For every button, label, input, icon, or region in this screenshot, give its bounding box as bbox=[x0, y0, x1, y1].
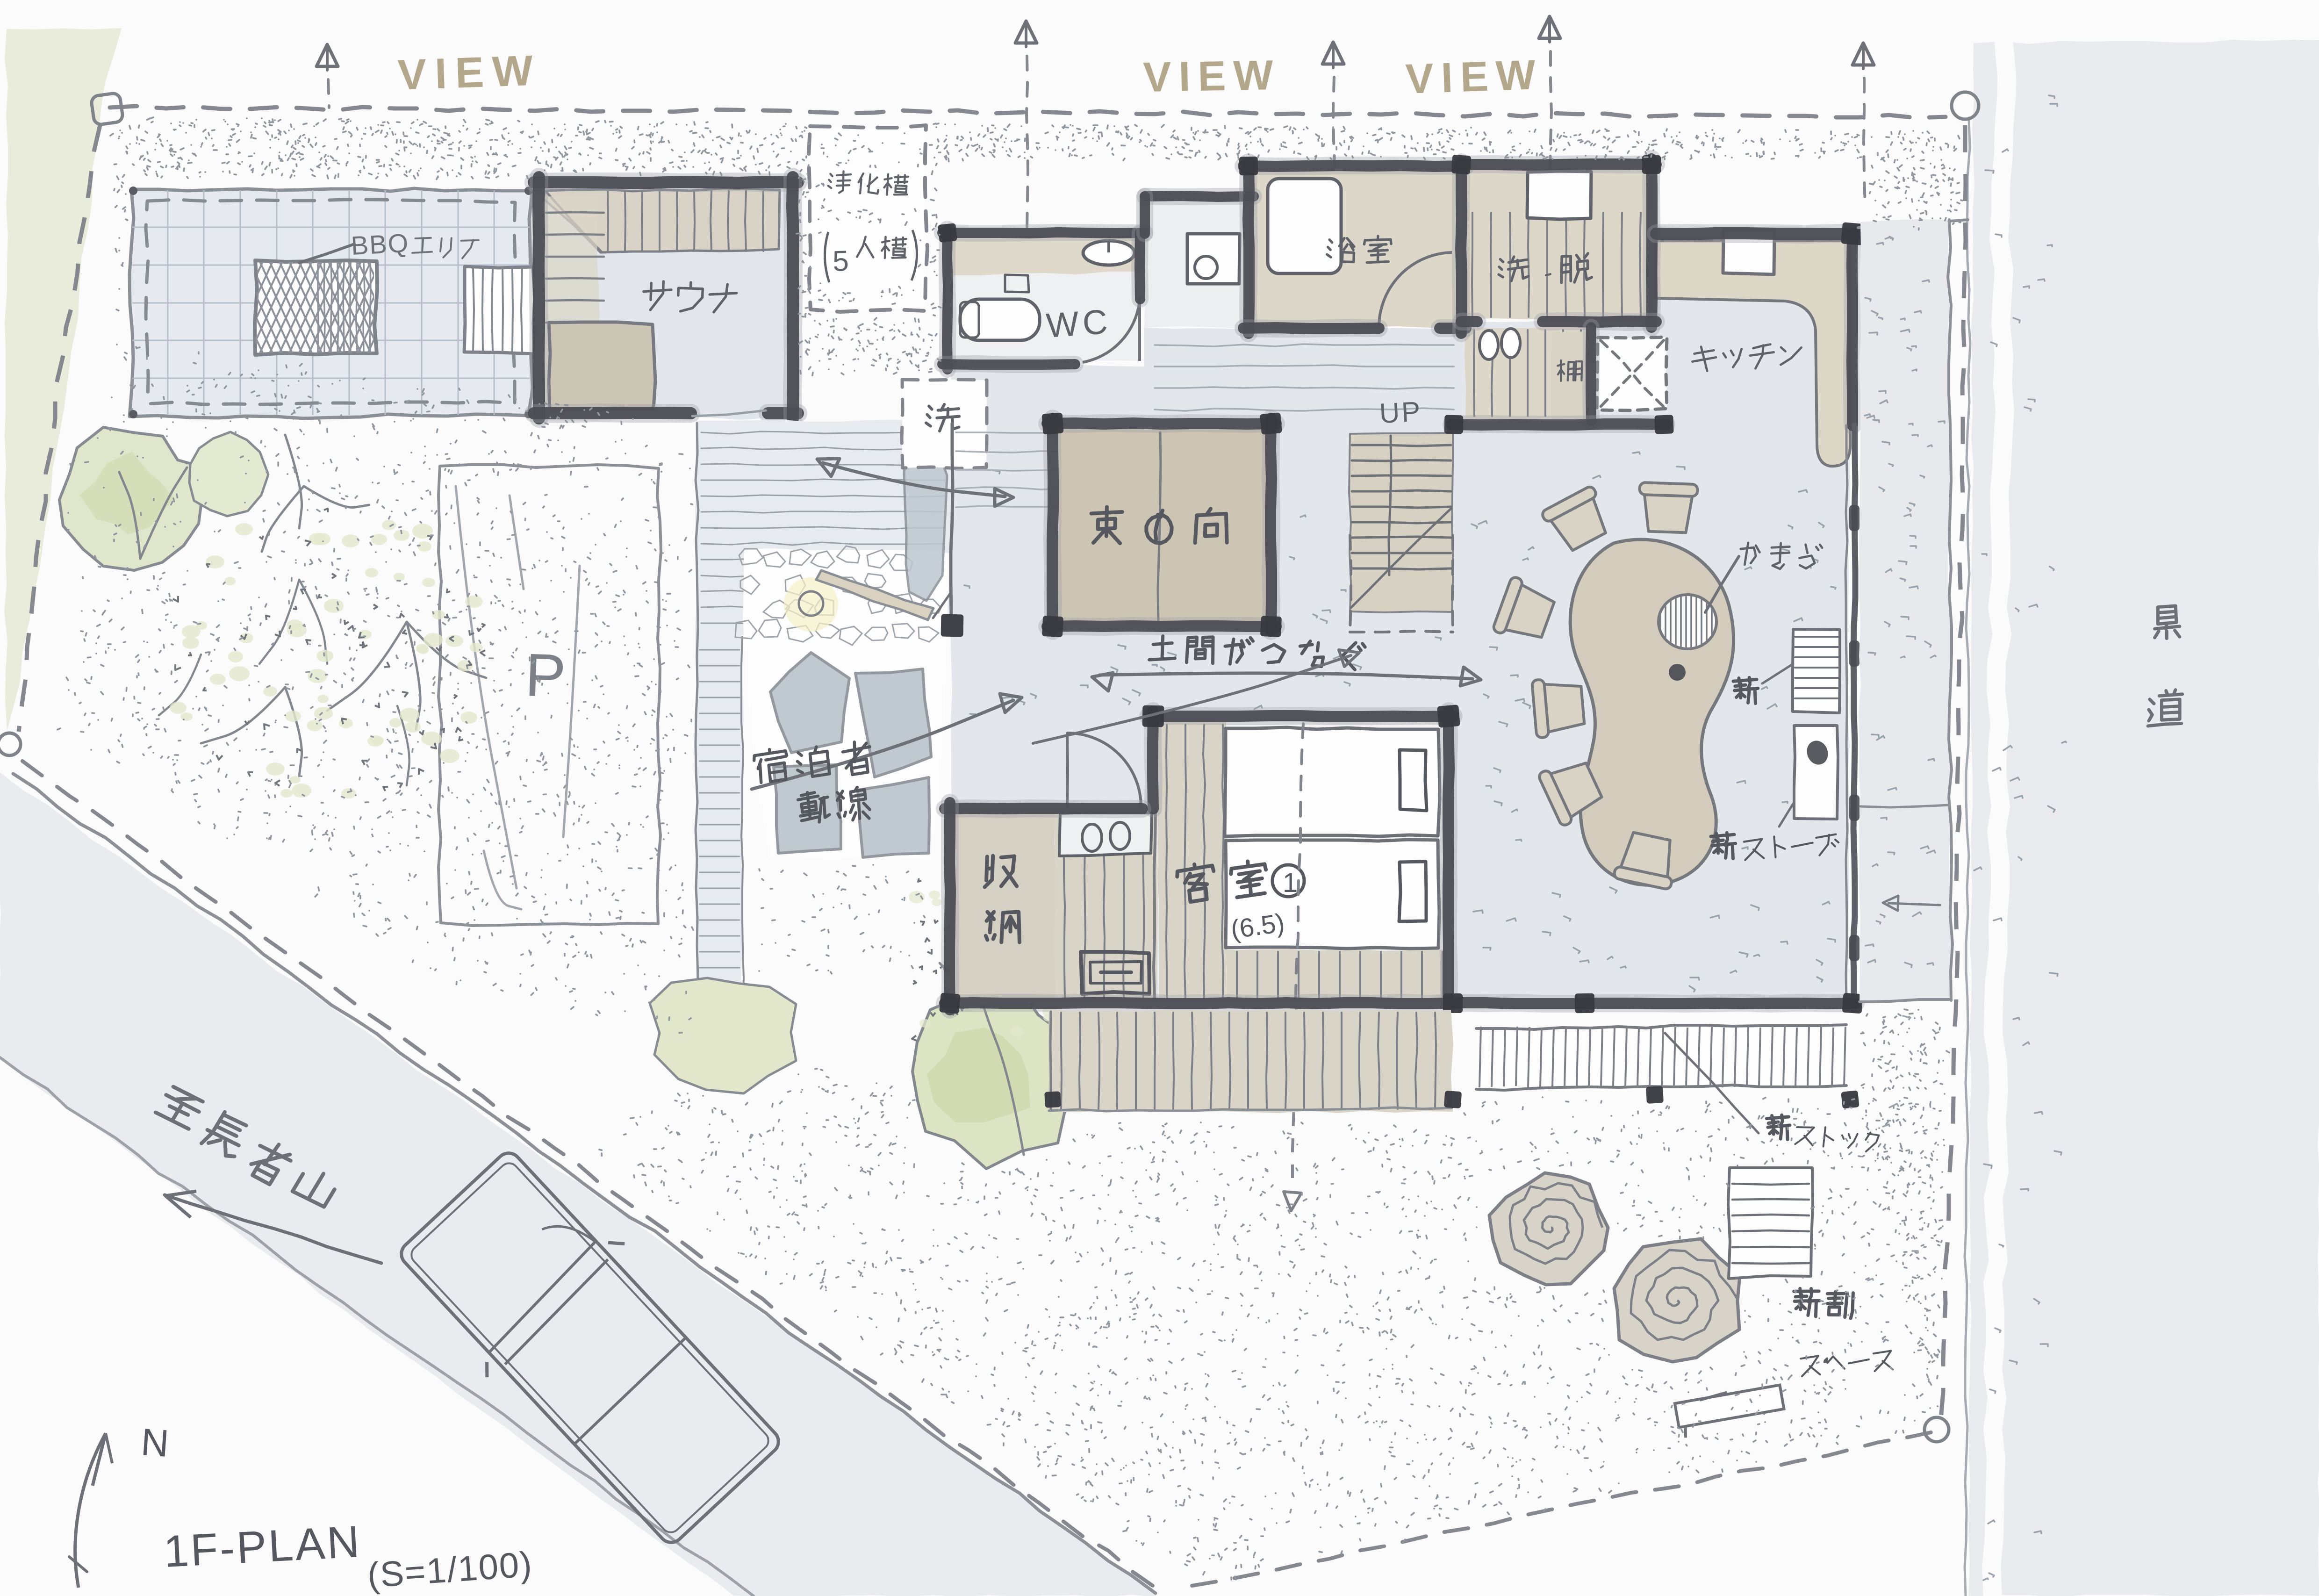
svg-text:BBQ: BBQ bbox=[350, 228, 409, 260]
svg-text:VIEW: VIEW bbox=[397, 46, 542, 99]
svg-text:1F-PLAN: 1F-PLAN bbox=[162, 1517, 362, 1577]
svg-text:WC: WC bbox=[1045, 302, 1113, 345]
svg-text:VIEW: VIEW bbox=[1143, 52, 1281, 101]
svg-text:N: N bbox=[140, 1421, 170, 1465]
svg-text:UP: UP bbox=[1378, 395, 1423, 429]
svg-text:1: 1 bbox=[1283, 868, 1298, 898]
svg-text:P: P bbox=[524, 640, 567, 710]
svg-text:5: 5 bbox=[832, 245, 849, 278]
svg-text:VIEW: VIEW bbox=[1405, 51, 1544, 103]
